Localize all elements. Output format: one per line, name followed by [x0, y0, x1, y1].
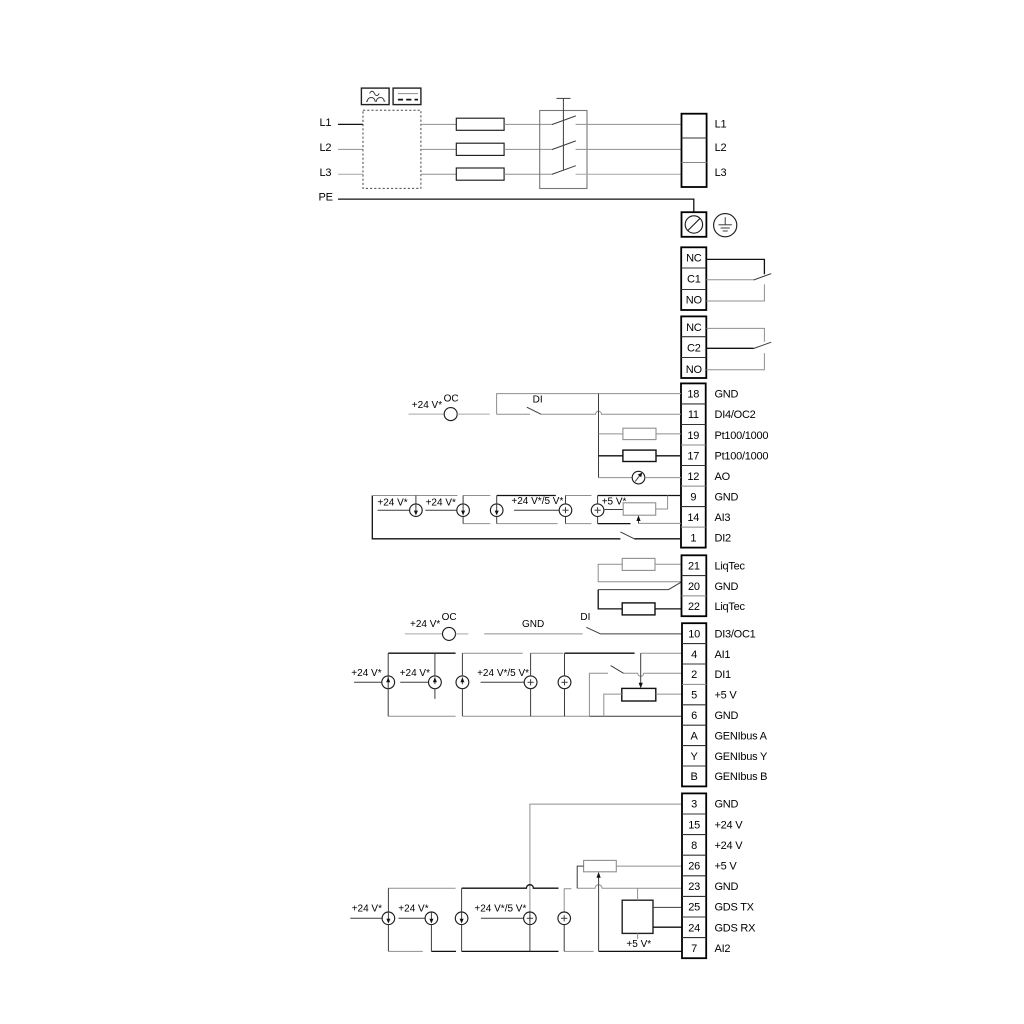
svg-text:GDS TX: GDS TX	[715, 902, 755, 914]
svg-text:L1: L1	[715, 118, 727, 130]
svg-text:25: 25	[688, 902, 700, 914]
svg-text:GND: GND	[715, 799, 739, 811]
svg-text:GDS RX: GDS RX	[715, 922, 757, 934]
svg-text:AO: AO	[715, 471, 731, 483]
svg-text:C2: C2	[687, 342, 701, 354]
svg-text:LiqTec: LiqTec	[715, 561, 746, 573]
svg-text:OC: OC	[444, 393, 459, 404]
svg-text:GND: GND	[715, 389, 739, 401]
svg-text:22: 22	[688, 601, 700, 613]
svg-text:Pt100/1000: Pt100/1000	[715, 430, 769, 442]
svg-text:+24 V: +24 V	[715, 840, 744, 852]
svg-text:+5 V: +5 V	[715, 861, 738, 873]
svg-text:NO: NO	[686, 295, 703, 307]
svg-text:+24 V*: +24 V*	[352, 904, 382, 915]
svg-text:8: 8	[691, 840, 697, 852]
svg-text:AI2: AI2	[715, 943, 731, 955]
svg-text:NC: NC	[686, 253, 702, 265]
svg-text:20: 20	[688, 581, 700, 593]
svg-text:PE: PE	[319, 192, 333, 204]
svg-text:+24 V*: +24 V*	[426, 498, 456, 509]
svg-text:4: 4	[691, 649, 697, 661]
svg-text:24: 24	[688, 922, 700, 934]
svg-text:+24 V*: +24 V*	[377, 498, 407, 509]
svg-text:+24 V*/5 V*: +24 V*/5 V*	[477, 668, 529, 679]
svg-text:L1: L1	[320, 117, 332, 129]
svg-text:GND: GND	[715, 881, 739, 893]
svg-text:GENIbus A: GENIbus A	[715, 730, 768, 742]
svg-text:DI3/OC1: DI3/OC1	[715, 628, 756, 640]
svg-text:3: 3	[691, 799, 697, 811]
svg-text:DI4/OC2: DI4/OC2	[715, 409, 756, 421]
svg-text:+24 V*: +24 V*	[410, 619, 440, 630]
svg-text:+5 V: +5 V	[715, 690, 738, 702]
svg-text:2: 2	[691, 669, 697, 681]
svg-text:GND: GND	[522, 619, 544, 630]
svg-text:17: 17	[687, 450, 699, 462]
svg-text:14: 14	[687, 512, 699, 524]
svg-text:NO: NO	[686, 364, 703, 376]
svg-text:+24 V: +24 V	[715, 819, 744, 831]
svg-text:+24 V*/5 V*: +24 V*/5 V*	[474, 904, 526, 915]
svg-text:L3: L3	[320, 167, 332, 179]
svg-text:A: A	[691, 730, 699, 742]
svg-text:LiqTec: LiqTec	[715, 601, 746, 613]
svg-text:DI: DI	[533, 394, 543, 405]
svg-text:10: 10	[688, 628, 700, 640]
svg-text:Pt100/1000: Pt100/1000	[715, 450, 769, 462]
svg-text:18: 18	[687, 389, 699, 401]
svg-text:21: 21	[688, 561, 700, 573]
svg-text:7: 7	[691, 943, 697, 955]
svg-text:1: 1	[690, 532, 696, 544]
svg-text:12: 12	[687, 471, 699, 483]
svg-text:L2: L2	[320, 142, 332, 154]
svg-text:6: 6	[691, 710, 697, 722]
svg-text:GENIbus Y: GENIbus Y	[715, 751, 768, 763]
svg-text:AI3: AI3	[715, 512, 731, 524]
svg-text:+24 V*: +24 V*	[351, 668, 381, 679]
svg-text:+5 V*: +5 V*	[626, 939, 651, 950]
svg-text:L3: L3	[715, 167, 727, 179]
svg-text:NC: NC	[686, 322, 702, 334]
svg-text:Y: Y	[691, 751, 699, 763]
svg-text:DI1: DI1	[715, 669, 732, 681]
svg-text:26: 26	[688, 861, 700, 873]
svg-text:11: 11	[688, 409, 699, 421]
svg-text:GND: GND	[715, 581, 739, 593]
svg-text:+24 V*/5 V*: +24 V*/5 V*	[511, 496, 563, 507]
svg-text:L2: L2	[715, 142, 727, 154]
svg-text:B: B	[691, 771, 698, 783]
svg-text:19: 19	[687, 430, 699, 442]
svg-text:AI1: AI1	[715, 649, 731, 661]
svg-text:OC: OC	[442, 612, 457, 623]
svg-text:C1: C1	[687, 274, 701, 286]
svg-text:23: 23	[688, 881, 700, 893]
svg-text:GND: GND	[715, 491, 739, 503]
svg-text:DI2: DI2	[715, 532, 732, 544]
svg-text:DI: DI	[580, 612, 590, 623]
svg-text:+24 V*: +24 V*	[398, 904, 428, 915]
svg-text:GENIbus B: GENIbus B	[715, 771, 768, 783]
svg-text:9: 9	[690, 491, 696, 503]
svg-text:15: 15	[688, 819, 700, 831]
svg-text:+24 V*: +24 V*	[400, 668, 430, 679]
svg-text:+24 V*: +24 V*	[412, 400, 442, 411]
svg-text:5: 5	[691, 690, 697, 702]
svg-text:GND: GND	[715, 710, 739, 722]
